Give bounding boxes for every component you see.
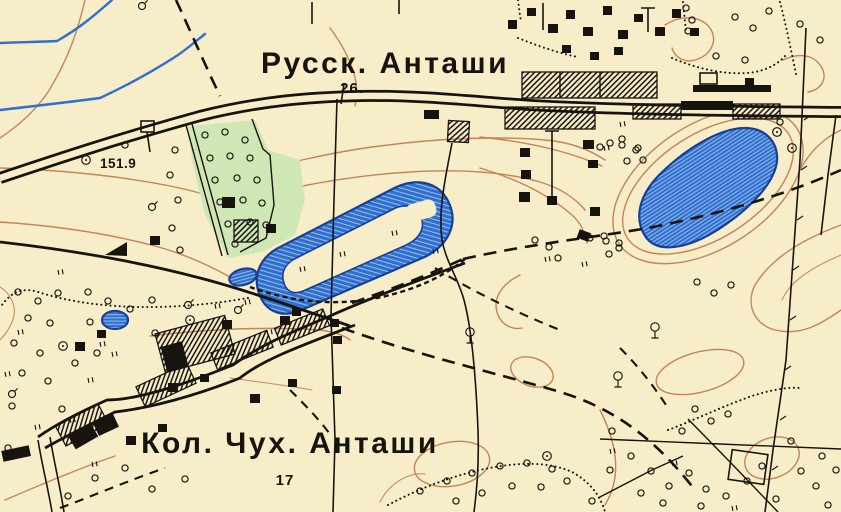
pond [102,311,128,329]
map-canvas[interactable]: Русск. Анташи 26. 151.9 Кол. Чух. Анташи… [0,0,841,512]
elevation-label: 151.9 [100,156,136,171]
settlement-top-label: Русск. Анташи [261,47,509,80]
km-marker-top: 26. [340,80,364,97]
settlement-bottom-label: Кол. Чух. Анташи [141,427,439,460]
topographic-map: Русск. Анташи 26. 151.9 Кол. Чух. Анташи… [0,0,841,512]
km-marker-bottom: 17 [276,472,295,489]
building-hatched [522,72,657,98]
